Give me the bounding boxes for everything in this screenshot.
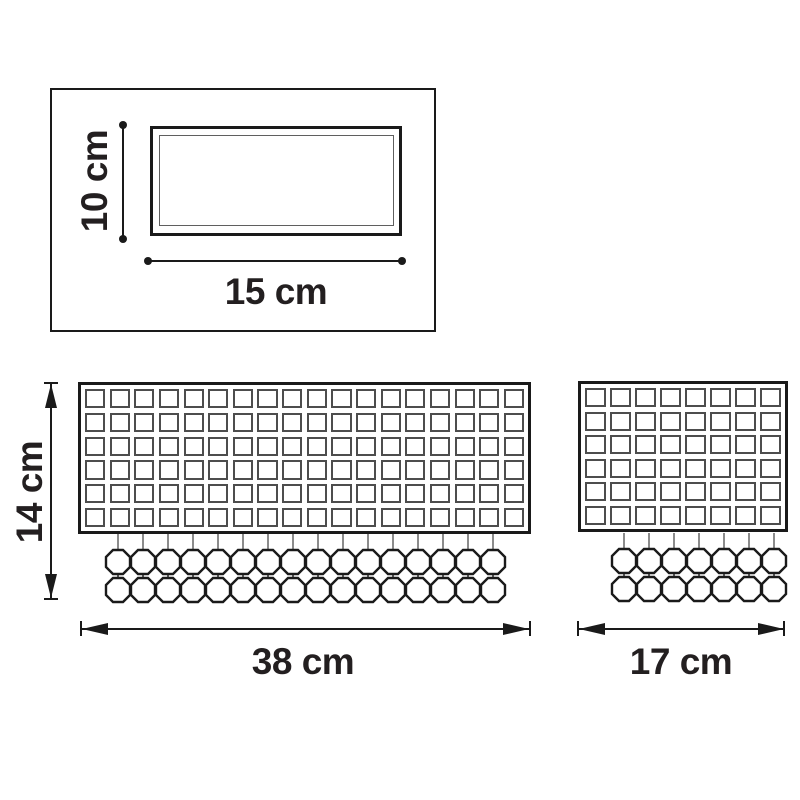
crystal-strand: [662, 533, 686, 601]
crystal-grid-square: [134, 508, 154, 527]
crystal-octagon-bead: [231, 578, 255, 602]
crystal-grid-square: [257, 413, 277, 432]
crystal-strand: [687, 533, 711, 601]
crystal-grid-square: [184, 437, 204, 456]
crystal-octagon-bead: [331, 550, 355, 574]
crystal-grid-square: [635, 506, 656, 525]
crystal-grid-square: [710, 482, 731, 501]
crystal-grid-square: [282, 413, 302, 432]
crystal-grid-square: [760, 388, 781, 407]
arrowhead-right: [503, 623, 529, 635]
crystal-octagon-bead: [331, 578, 355, 602]
crystal-octagon-bead: [712, 549, 736, 573]
crystal-grid-square: [660, 435, 681, 454]
crystal-strand: [712, 533, 736, 601]
dimension-diagram: 10 cm 15 cm 14 cm 38 cm 17 cm: [0, 0, 800, 800]
crystal-strand: [256, 534, 280, 602]
dim-dot-bottom: [119, 235, 127, 243]
crystal-grid-square: [479, 413, 499, 432]
crystal-grid-square: [356, 508, 376, 527]
crystal-grid-square: [479, 508, 499, 527]
crystal-octagon-bead: [662, 577, 686, 601]
crystal-octagon-bead: [612, 549, 636, 573]
crystal-strand: [456, 534, 480, 602]
crystal-grid-square: [504, 508, 524, 527]
crystal-grid-square: [585, 435, 606, 454]
crystal-grid-square: [134, 389, 154, 408]
crystal-octagon-bead: [181, 578, 205, 602]
crystal-grid-square: [233, 389, 253, 408]
crystal-grid-square: [134, 484, 154, 503]
crystal-grid-square: [307, 437, 327, 456]
crystal-grid-square: [110, 389, 130, 408]
crystal-grid-square: [134, 437, 154, 456]
crystal-octagon-bead: [206, 550, 230, 574]
crystal-grid-square: [710, 506, 731, 525]
crystal-grid-square: [184, 460, 204, 479]
crystal-octagon-bead: [131, 550, 155, 574]
crystal-grid-square: [685, 459, 706, 478]
crystal-grid-square: [735, 482, 756, 501]
crystal-grid-square: [504, 413, 524, 432]
crystal-grid-square: [159, 484, 179, 503]
crystal-grid-square: [356, 413, 376, 432]
crystal-grid-square: [134, 460, 154, 479]
dim-line-small-width: [578, 628, 784, 630]
crystal-octagon-bead: [712, 577, 736, 601]
crystal-grid-square: [479, 484, 499, 503]
crystal-octagon-bead: [206, 578, 230, 602]
crystal-strand: [331, 534, 355, 602]
crystal-grid-square: [710, 459, 731, 478]
crystal-octagon-bead: [431, 578, 455, 602]
crystal-grid-square: [660, 459, 681, 478]
dim-line-large-height: [50, 383, 52, 600]
crystal-grid-square: [159, 508, 179, 527]
crystal-grid-square: [159, 437, 179, 456]
crystal-grid-square: [585, 482, 606, 501]
crystal-grid-square: [208, 484, 228, 503]
crystal-grid-square: [479, 389, 499, 408]
crystal-grid-square: [282, 389, 302, 408]
crystal-grid-square: [381, 508, 401, 527]
crystal-grid-square: [735, 388, 756, 407]
crystal-octagon-bead: [281, 578, 305, 602]
top-view-width-label: 15 cm: [196, 272, 356, 312]
small-width-label: 17 cm: [601, 642, 761, 682]
crystal-octagon-bead: [481, 578, 505, 602]
crystal-grid-square: [455, 413, 475, 432]
crystal-strand: [281, 534, 305, 602]
crystal-strand: [637, 533, 661, 601]
large-crystal-strands: [78, 534, 531, 604]
crystal-octagon-bead: [687, 549, 711, 573]
crystal-octagon-bead: [131, 578, 155, 602]
crystal-strand: [737, 533, 761, 601]
crystal-octagon-bead: [356, 550, 380, 574]
crystal-grid-square: [685, 412, 706, 431]
crystal-grid-square: [585, 412, 606, 431]
crystal-grid-square: [405, 437, 425, 456]
crystal-octagon-bead: [481, 550, 505, 574]
crystal-grid-square: [233, 508, 253, 527]
crystal-octagon-bead: [156, 550, 180, 574]
crystal-octagon-bead: [231, 550, 255, 574]
crystal-grid-square: [233, 460, 253, 479]
crystal-grid-square: [455, 437, 475, 456]
crystal-strand: [106, 534, 130, 602]
crystal-grid-square: [635, 412, 656, 431]
dim-dot-right: [398, 257, 406, 265]
small-crystal-grid: [581, 384, 785, 529]
crystal-grid-square: [85, 484, 105, 503]
crystal-grid-square: [208, 460, 228, 479]
crystal-octagon-bead: [256, 578, 280, 602]
crystal-grid-square: [282, 437, 302, 456]
crystal-grid-square: [331, 460, 351, 479]
crystal-grid-square: [85, 413, 105, 432]
crystal-grid-square: [233, 413, 253, 432]
crystal-strand: [306, 534, 330, 602]
crystal-grid-square: [610, 435, 631, 454]
crystal-octagon-bead: [662, 549, 686, 573]
crystal-grid-square: [405, 413, 425, 432]
crystal-grid-square: [356, 484, 376, 503]
crystal-grid-square: [184, 413, 204, 432]
crystal-octagon-bead: [762, 577, 786, 601]
crystal-grid-square: [635, 482, 656, 501]
crystal-grid-square: [331, 508, 351, 527]
crystal-grid-square: [760, 459, 781, 478]
crystal-grid-square: [760, 435, 781, 454]
crystal-octagon-bead: [381, 578, 405, 602]
crystal-grid-square: [381, 413, 401, 432]
crystal-grid-square: [660, 506, 681, 525]
crystal-grid-square: [331, 484, 351, 503]
crystal-grid-square: [685, 388, 706, 407]
dim-line-large-width: [81, 628, 531, 630]
crystal-octagon-bead: [156, 578, 180, 602]
crystal-octagon-bead: [281, 550, 305, 574]
crystal-octagon-bead: [106, 550, 130, 574]
crystal-grid-square: [257, 484, 277, 503]
crystal-grid-square: [85, 389, 105, 408]
crystal-grid-square: [257, 437, 277, 456]
crystal-grid-square: [307, 389, 327, 408]
crystal-grid-square: [257, 508, 277, 527]
crystal-grid-square: [430, 437, 450, 456]
crystal-grid-square: [282, 460, 302, 479]
crystal-grid-square: [585, 388, 606, 407]
crystal-grid-square: [307, 484, 327, 503]
crystal-grid-square: [110, 437, 130, 456]
crystal-grid-square: [405, 460, 425, 479]
crystal-grid-square: [331, 389, 351, 408]
crystal-octagon-bead: [406, 578, 430, 602]
crystal-octagon-bead: [306, 578, 330, 602]
crystal-grid-square: [585, 506, 606, 525]
crystal-grid-square: [504, 437, 524, 456]
large-height-label: 14 cm: [10, 412, 50, 572]
crystal-grid-square: [430, 484, 450, 503]
dim-tick-bottom: [44, 598, 58, 600]
crystal-grid-square: [110, 460, 130, 479]
crystal-grid-square: [257, 389, 277, 408]
crystal-grid-square: [307, 413, 327, 432]
crystal-grid-square: [735, 412, 756, 431]
crystal-grid-square: [430, 389, 450, 408]
crystal-grid-square: [610, 412, 631, 431]
crystal-grid-square: [760, 482, 781, 501]
crystal-grid-square: [504, 484, 524, 503]
dim-line-top-width: [148, 260, 402, 262]
crystal-grid-square: [479, 460, 499, 479]
crystal-grid-square: [184, 508, 204, 527]
top-view-height-label: 10 cm: [75, 101, 115, 261]
crystal-grid-square: [356, 460, 376, 479]
crystal-grid-square: [685, 506, 706, 525]
crystal-grid-square: [710, 412, 731, 431]
crystal-octagon-bead: [612, 577, 636, 601]
crystal-grid-square: [710, 435, 731, 454]
top-view-fixture-inner: [159, 135, 394, 226]
crystal-octagon-bead: [306, 550, 330, 574]
crystal-octagon-bead: [737, 577, 761, 601]
crystal-octagon-bead: [456, 550, 480, 574]
crystal-grid-square: [479, 437, 499, 456]
small-fixture-body: [578, 381, 788, 532]
arrowhead-up: [45, 384, 57, 408]
crystal-strand: [612, 533, 636, 601]
large-crystal-grid: [81, 385, 528, 531]
crystal-grid-square: [85, 437, 105, 456]
crystal-grid-square: [381, 484, 401, 503]
crystal-grid-square: [735, 506, 756, 525]
crystal-grid-square: [331, 437, 351, 456]
crystal-grid-square: [405, 389, 425, 408]
crystal-grid-square: [430, 508, 450, 527]
crystal-grid-square: [381, 389, 401, 408]
crystal-grid-square: [685, 482, 706, 501]
dim-line-top-height: [122, 125, 124, 239]
crystal-grid-square: [356, 389, 376, 408]
crystal-grid-square: [208, 389, 228, 408]
crystal-grid-square: [430, 460, 450, 479]
crystal-grid-square: [307, 508, 327, 527]
crystal-grid-square: [760, 412, 781, 431]
crystal-grid-square: [635, 435, 656, 454]
crystal-grid-square: [660, 388, 681, 407]
dim-dot-left: [144, 257, 152, 265]
crystal-grid-square: [233, 437, 253, 456]
dim-dot-top: [119, 121, 127, 129]
crystal-grid-square: [184, 484, 204, 503]
crystal-grid-square: [504, 389, 524, 408]
crystal-octagon-bead: [381, 550, 405, 574]
crystal-grid-square: [134, 413, 154, 432]
crystal-grid-square: [85, 460, 105, 479]
crystal-strand: [431, 534, 455, 602]
crystal-grid-square: [282, 508, 302, 527]
crystal-octagon-bead: [637, 577, 661, 601]
crystal-grid-square: [184, 389, 204, 408]
crystal-strand: [406, 534, 430, 602]
crystal-grid-square: [331, 413, 351, 432]
crystal-grid-square: [405, 484, 425, 503]
crystal-strand: [481, 534, 505, 602]
crystal-grid-square: [610, 388, 631, 407]
large-fixture-body: [78, 382, 531, 534]
crystal-strand: [131, 534, 155, 602]
crystal-grid-square: [455, 389, 475, 408]
crystal-grid-square: [85, 508, 105, 527]
crystal-octagon-bead: [687, 577, 711, 601]
crystal-grid-square: [356, 437, 376, 456]
crystal-strand: [181, 534, 205, 602]
crystal-grid-square: [282, 484, 302, 503]
crystal-grid-square: [208, 508, 228, 527]
crystal-strand: [156, 534, 180, 602]
crystal-grid-square: [710, 388, 731, 407]
arrowhead-left: [579, 623, 605, 635]
crystal-grid-square: [685, 435, 706, 454]
crystal-octagon-bead: [356, 578, 380, 602]
crystal-grid-square: [405, 508, 425, 527]
arrowhead-left: [82, 623, 108, 635]
crystal-grid-square: [159, 413, 179, 432]
arrowhead-down: [45, 574, 57, 598]
crystal-grid-square: [455, 460, 475, 479]
crystal-strand: [231, 534, 255, 602]
crystal-grid-square: [635, 459, 656, 478]
dim-tick-right: [529, 621, 531, 636]
crystal-octagon-bead: [181, 550, 205, 574]
crystal-strand: [381, 534, 405, 602]
crystal-grid-square: [208, 413, 228, 432]
crystal-grid-square: [635, 388, 656, 407]
crystal-grid-square: [455, 484, 475, 503]
crystal-grid-square: [307, 460, 327, 479]
crystal-octagon-bead: [256, 550, 280, 574]
crystal-grid-square: [455, 508, 475, 527]
crystal-grid-square: [159, 389, 179, 408]
large-width-label: 38 cm: [223, 642, 383, 682]
arrowhead-right: [758, 623, 784, 635]
crystal-grid-square: [735, 459, 756, 478]
crystal-grid-square: [257, 460, 277, 479]
crystal-octagon-bead: [737, 549, 761, 573]
crystal-grid-square: [381, 437, 401, 456]
crystal-grid-square: [585, 459, 606, 478]
crystal-strand: [206, 534, 230, 602]
crystal-strand: [762, 533, 786, 601]
crystal-grid-square: [159, 460, 179, 479]
crystal-octagon-bead: [106, 578, 130, 602]
crystal-grid-square: [610, 459, 631, 478]
crystal-octagon-bead: [762, 549, 786, 573]
crystal-grid-square: [110, 413, 130, 432]
crystal-grid-square: [660, 412, 681, 431]
crystal-octagon-bead: [431, 550, 455, 574]
crystal-strand: [356, 534, 380, 602]
crystal-octagon-bead: [456, 578, 480, 602]
crystal-octagon-bead: [637, 549, 661, 573]
crystal-grid-square: [430, 413, 450, 432]
crystal-grid-square: [660, 482, 681, 501]
small-crystal-strands: [578, 533, 788, 603]
crystal-grid-square: [233, 484, 253, 503]
crystal-grid-square: [735, 435, 756, 454]
crystal-grid-square: [504, 460, 524, 479]
crystal-grid-square: [110, 508, 130, 527]
crystal-grid-square: [381, 460, 401, 479]
crystal-grid-square: [208, 437, 228, 456]
crystal-grid-square: [760, 506, 781, 525]
crystal-grid-square: [610, 506, 631, 525]
crystal-grid-square: [610, 482, 631, 501]
crystal-grid-square: [110, 484, 130, 503]
crystal-octagon-bead: [406, 550, 430, 574]
